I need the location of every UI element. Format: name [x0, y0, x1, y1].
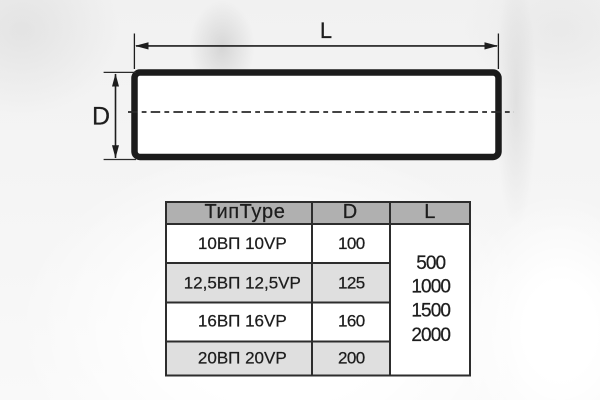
- svg-text:2000: 2000: [411, 325, 450, 346]
- svg-text:16ВП 16VP: 16ВП 16VP: [198, 312, 287, 331]
- svg-text:D: D: [343, 201, 357, 223]
- svg-text:1000: 1000: [411, 277, 450, 298]
- svg-text:500: 500: [416, 253, 445, 274]
- svg-text:L: L: [424, 201, 435, 223]
- svg-text:125: 125: [338, 274, 365, 293]
- svg-text:12,5ВП 12,5VP: 12,5ВП 12,5VP: [184, 274, 301, 293]
- svg-text:160: 160: [338, 312, 365, 331]
- svg-text:10ВП 10VP: 10ВП 10VP: [198, 234, 287, 253]
- svg-text:1500: 1500: [411, 300, 450, 321]
- svg-text:L: L: [320, 18, 332, 43]
- svg-text:D: D: [92, 103, 110, 131]
- svg-text:100: 100: [338, 234, 365, 253]
- svg-text:20ВП 20VP: 20ВП 20VP: [198, 349, 287, 368]
- svg-text:ТипType: ТипType: [205, 201, 286, 223]
- svg-text:200: 200: [338, 349, 365, 368]
